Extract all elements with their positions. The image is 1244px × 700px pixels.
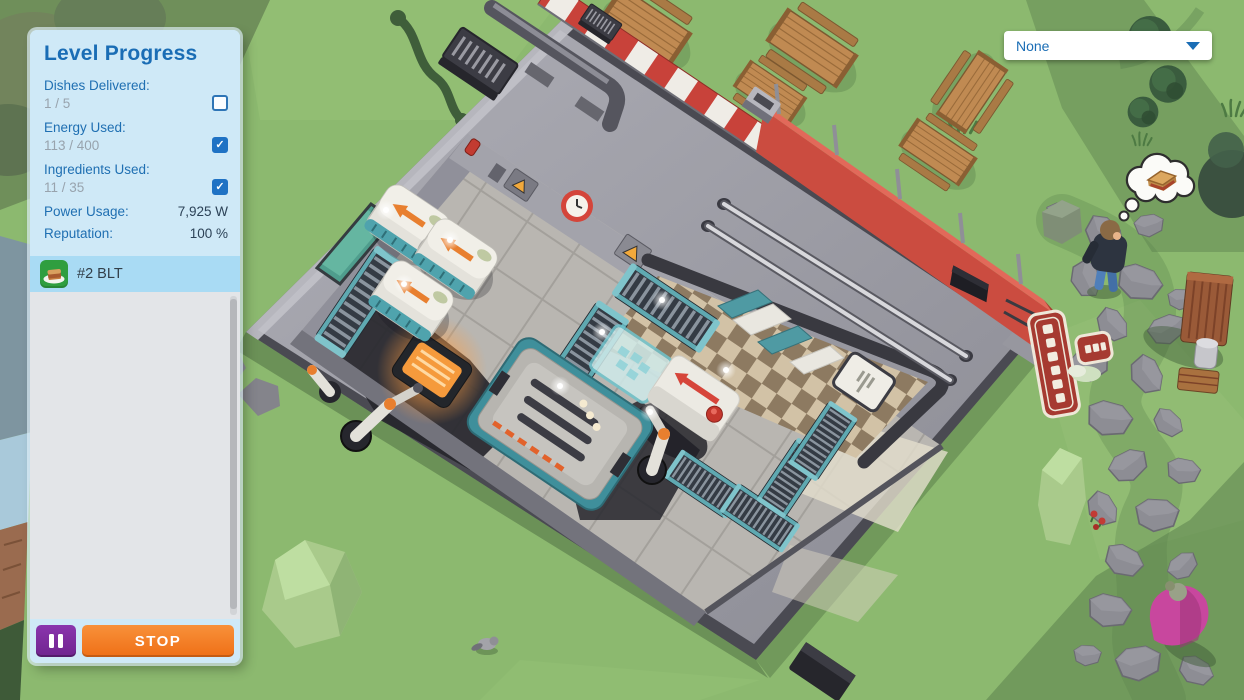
goal-ingredients-used: Ingredients Used: 11 / 35: [44, 162, 228, 195]
order-row-blt[interactable]: #2 BLT: [30, 256, 240, 292]
camera-dropdown[interactable]: None: [1004, 31, 1212, 60]
goal-checkbox-checked: [212, 179, 228, 195]
metric-value: 7,925 W: [178, 204, 228, 219]
panel-title: Level Progress: [44, 42, 228, 66]
stop-button[interactable]: STOP: [82, 625, 234, 657]
metric-value: 100 %: [190, 226, 228, 241]
level-progress-stats: Level Progress Dishes Delivered: 1 / 5 E…: [30, 30, 240, 250]
wall-clock: [561, 190, 593, 222]
level-progress-panel: Level Progress Dishes Delivered: 1 / 5 E…: [30, 30, 240, 663]
pause-icon: [49, 634, 54, 648]
order-label: #2 BLT: [77, 266, 123, 282]
goal-value: 1 / 5: [44, 96, 70, 111]
goal-checkbox-unchecked: [212, 95, 228, 111]
dropdown-value: None: [1016, 38, 1049, 54]
metric-reputation: Reputation: 100 %: [44, 226, 228, 241]
goal-value: 11 / 35: [44, 180, 84, 195]
blt-dish-icon: [40, 260, 68, 288]
order-list-scrollbar[interactable]: [230, 296, 237, 615]
goal-dishes-delivered: Dishes Delivered: 1 / 5: [44, 78, 228, 111]
chevron-down-icon: [1186, 42, 1200, 50]
pause-button[interactable]: [36, 625, 76, 657]
small-neon-sign: [1075, 331, 1113, 364]
goal-checkbox-checked: [212, 137, 228, 153]
panel-footer: STOP: [30, 619, 240, 663]
goal-label: Dishes Delivered:: [44, 78, 228, 93]
metric-power-usage: Power Usage: 7,925 W: [44, 204, 228, 219]
game-screen: Level Progress Dishes Delivered: 1 / 5 E…: [0, 0, 1244, 700]
metric-label: Reputation:: [44, 226, 113, 241]
goal-label: Energy Used:: [44, 120, 228, 135]
scrollbar-thumb[interactable]: [230, 299, 237, 608]
goal-energy-used: Energy Used: 113 / 400: [44, 120, 228, 153]
goal-value: 113 / 400: [44, 138, 99, 153]
metric-label: Power Usage:: [44, 204, 129, 219]
order-list: [30, 292, 240, 619]
goal-label: Ingredients Used:: [44, 162, 228, 177]
